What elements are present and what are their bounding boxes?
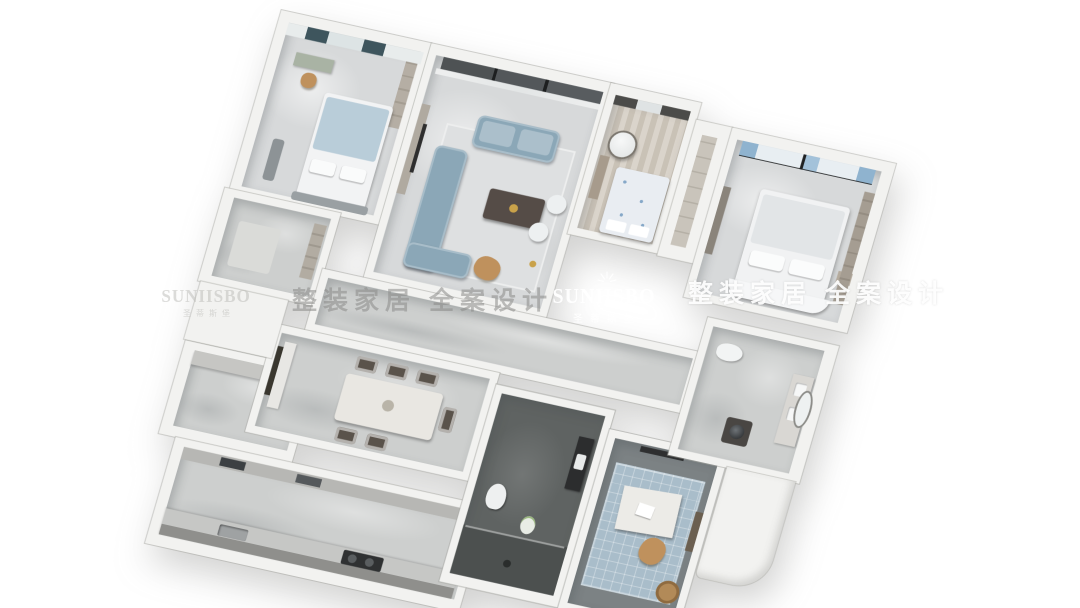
watermark-slogan-gray: 整装家居 全案设计 <box>292 281 553 317</box>
chair <box>299 71 319 89</box>
shower-area <box>450 524 568 595</box>
brand-name: SUNIISBO <box>548 284 660 309</box>
bed-blanket <box>312 96 390 162</box>
sun-logo-icon <box>548 272 666 284</box>
bed-pillow <box>605 219 627 233</box>
window-frame <box>440 57 603 104</box>
brand-name-chinese: 圣蒂斯堡 <box>150 308 268 319</box>
stove <box>340 550 384 573</box>
toilet <box>714 341 745 363</box>
bed <box>296 92 394 209</box>
bed-pillow <box>308 158 336 176</box>
dining-chair <box>334 426 359 445</box>
toilet <box>483 482 509 511</box>
kids-bed <box>598 166 670 243</box>
kitchen-counter <box>159 508 459 599</box>
appliance <box>219 457 246 471</box>
bed-pillow <box>628 224 650 238</box>
dining-chair <box>364 433 389 452</box>
bench <box>262 138 285 181</box>
watermark-slogan-white: 整装家居 全案设计 <box>688 274 949 310</box>
stool <box>518 515 537 536</box>
bed-pillow <box>747 250 786 272</box>
paper <box>635 502 655 519</box>
bed-pillow <box>339 165 367 183</box>
shower-glass <box>465 525 564 549</box>
bath-vanity <box>564 436 594 491</box>
floorplan-render: SUNIISBO 圣蒂斯堡 整装家居 全案设计 SUNIISBO 圣蒂斯堡 整装… <box>0 0 1080 608</box>
dining-chair <box>437 406 457 433</box>
desk <box>614 485 682 538</box>
drain <box>502 559 512 568</box>
washing-machine <box>720 417 753 448</box>
master-window <box>739 141 876 185</box>
appliance <box>295 474 322 488</box>
brand-name: SUNIISBO <box>150 286 262 307</box>
centerpiece <box>381 399 396 413</box>
vanity <box>588 155 610 200</box>
desk <box>293 52 335 73</box>
sink <box>573 454 587 471</box>
watermark-logo-left: SUNIISBO 圣蒂斯堡 <box>150 286 268 319</box>
dining-chair <box>384 362 409 381</box>
brand-name-chinese: 圣蒂斯堡 <box>548 310 666 325</box>
watermark-logo-center: SUNIISBO 圣蒂斯堡 <box>548 272 666 325</box>
sink <box>217 524 249 541</box>
window-curtain-dark <box>613 95 691 121</box>
dining-chair <box>415 369 440 388</box>
room-main-bathroom <box>668 317 839 484</box>
bed-blanket <box>750 194 846 260</box>
dining-chair <box>354 356 379 375</box>
table-decor <box>508 203 519 213</box>
entry-rug <box>227 221 282 275</box>
